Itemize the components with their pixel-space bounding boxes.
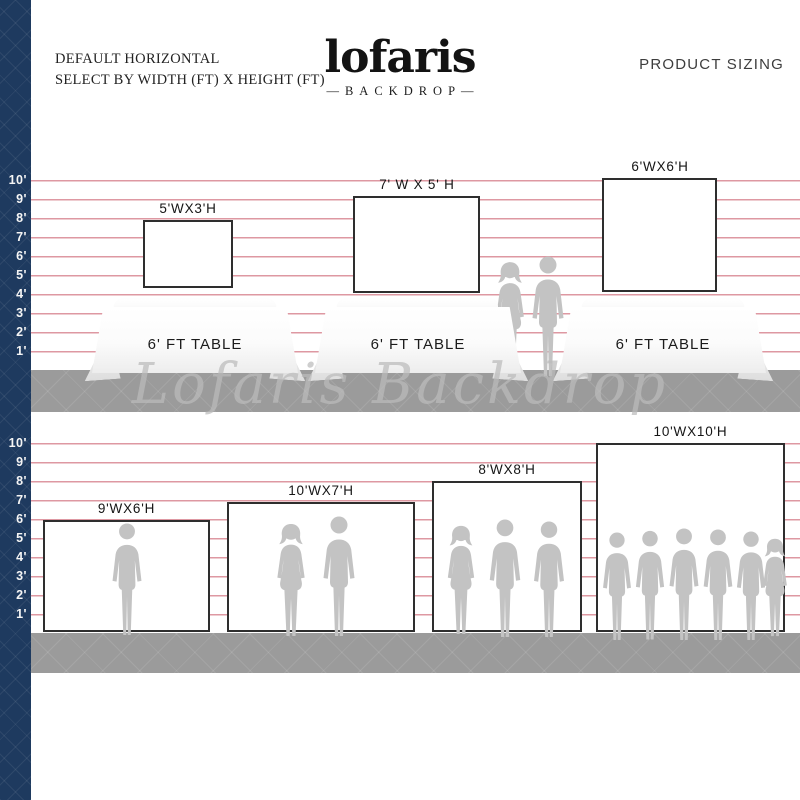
page-title: PRODUCT SIZING [639, 56, 784, 73]
backdrop-10x10-label: 10'WX10'H [596, 424, 785, 439]
sizing-instructions: DEFAULT HORIZONTAL SELECT BY WIDTH (FT) … [55, 49, 325, 91]
ruler-top-1ft: 1' [0, 342, 27, 360]
table-right: 6' FT TABLE [560, 299, 766, 375]
ruler-bottom-10ft: 10' [0, 434, 27, 452]
ruler-top-3ft: 3' [0, 304, 27, 322]
table-left: 6' FT TABLE [92, 299, 298, 375]
ruler-top-8ft: 8' [0, 209, 27, 227]
people-silhouette-group-of-six [597, 528, 789, 640]
backdrop-7x5-label: 7' W X 5' H [352, 177, 482, 192]
ruler-top-9ft: 9' [0, 190, 27, 208]
ruler-bottom-1ft: 1' [0, 605, 27, 623]
product-sizing-chart: DEFAULT HORIZONTAL SELECT BY WIDTH (FT) … [0, 0, 800, 800]
ruler-top-10ft: 10' [0, 171, 27, 189]
backdrop-6x6 [602, 178, 717, 292]
ruler-bottom-6ft: 6' [0, 510, 27, 528]
ruler-sidebar [0, 0, 31, 800]
ruler-top-7ft: 7' [0, 228, 27, 246]
table-label: 6' FT TABLE [92, 336, 298, 353]
ruler-top-2ft: 2' [0, 323, 27, 341]
ruler-bottom-2ft: 2' [0, 586, 27, 604]
backdrop-10x7-label: 10'WX7'H [227, 483, 415, 498]
ruler-bottom-4ft: 4' [0, 548, 27, 566]
people-silhouette-trio [441, 519, 574, 637]
instruction-line-1: DEFAULT HORIZONTAL [55, 49, 325, 70]
backdrop-5x3-label: 5'WX3'H [118, 201, 258, 216]
ruler-bottom-9ft: 9' [0, 453, 27, 471]
brand-logo: lofaris —BACKDROP— [320, 36, 479, 99]
backdrop-5x3 [143, 220, 233, 288]
instruction-line-2: SELECT BY WIDTH (FT) X HEIGHT (FT) [55, 70, 325, 91]
ruler-top-4ft: 4' [0, 285, 27, 303]
ruler-bottom-8ft: 8' [0, 472, 27, 490]
backdrop-8x8-label: 8'WX8'H [432, 462, 582, 477]
floor-band-top [31, 370, 800, 412]
ruler-top-6ft: 6' [0, 247, 27, 265]
ruler-bottom-3ft: 3' [0, 567, 27, 585]
brand-logo-wordmark: lofaris [320, 36, 479, 80]
backdrop-6x6-label: 6'WX6'H [595, 159, 725, 174]
backdrop-9x6-label: 9'WX6'H [43, 501, 210, 516]
ruler-top-5ft: 5' [0, 266, 27, 284]
backdrop-7x5 [353, 196, 480, 293]
ruler-bottom-5ft: 5' [0, 529, 27, 547]
people-silhouette-couple [270, 516, 368, 636]
table-center: 6' FT TABLE [315, 299, 521, 375]
table-label: 6' FT TABLE [315, 336, 521, 353]
people-silhouette-single-man [101, 523, 153, 635]
ruler-bottom-7ft: 7' [0, 491, 27, 509]
brand-logo-subtext: —BACKDROP— [320, 84, 479, 99]
table-label: 6' FT TABLE [560, 336, 766, 353]
